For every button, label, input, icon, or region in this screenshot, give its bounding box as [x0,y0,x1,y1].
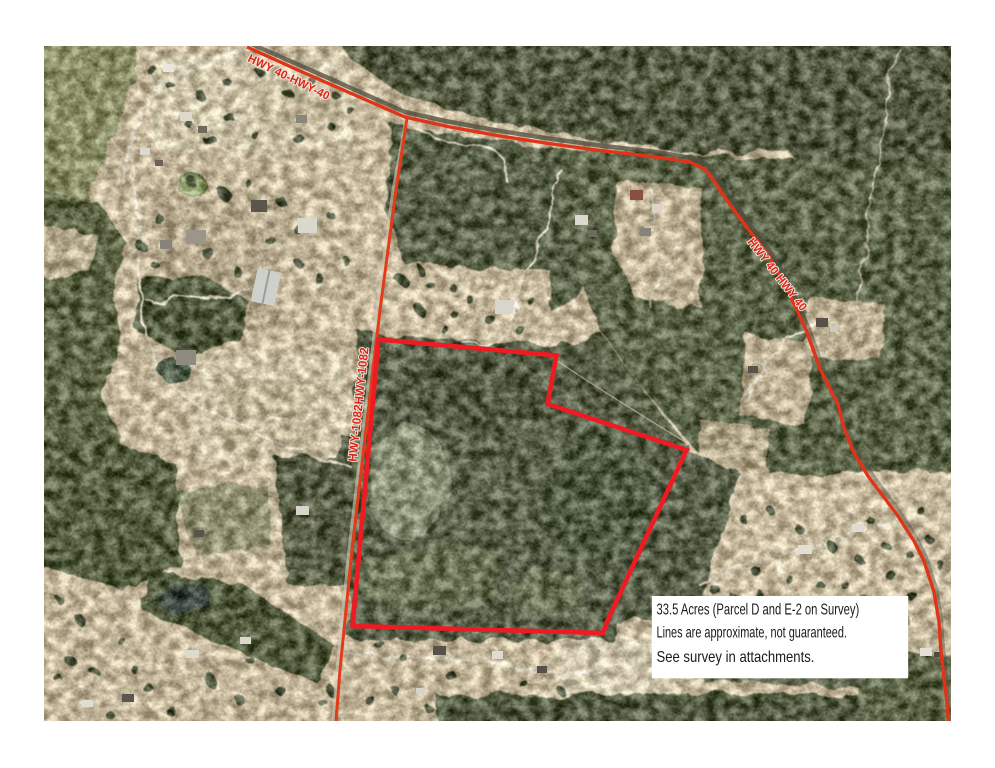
svg-text:33.5 Acres (Parcel D and E-2 o: 33.5 Acres (Parcel D and E-2 on Survey) [657,601,860,618]
svg-text:Lines are approximate, not gua: Lines are approximate, not guaranteed. [657,623,847,640]
svg-text:See survey in attachments.: See survey in attachments. [657,649,815,666]
